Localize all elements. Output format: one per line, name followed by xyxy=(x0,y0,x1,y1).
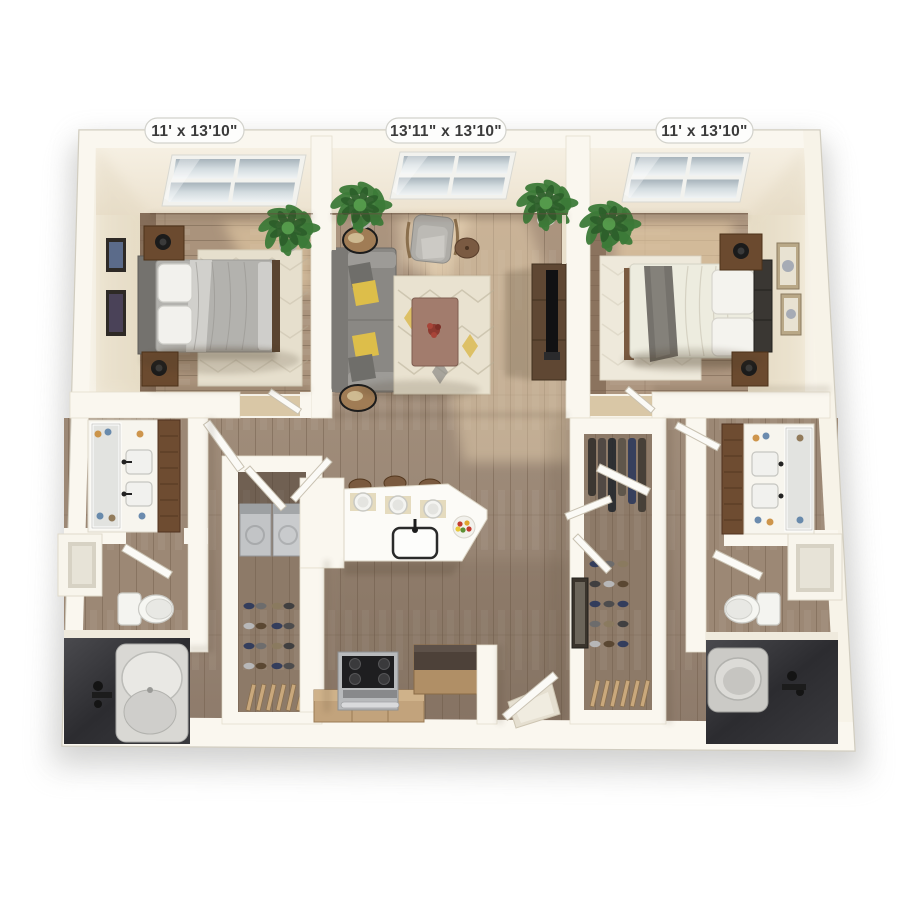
svg-text:13'11" x 13'10": 13'11" x 13'10" xyxy=(390,123,502,140)
svg-text:11' x 13'10": 11' x 13'10" xyxy=(151,123,237,140)
svg-text:11' x 13'10": 11' x 13'10" xyxy=(661,123,747,140)
